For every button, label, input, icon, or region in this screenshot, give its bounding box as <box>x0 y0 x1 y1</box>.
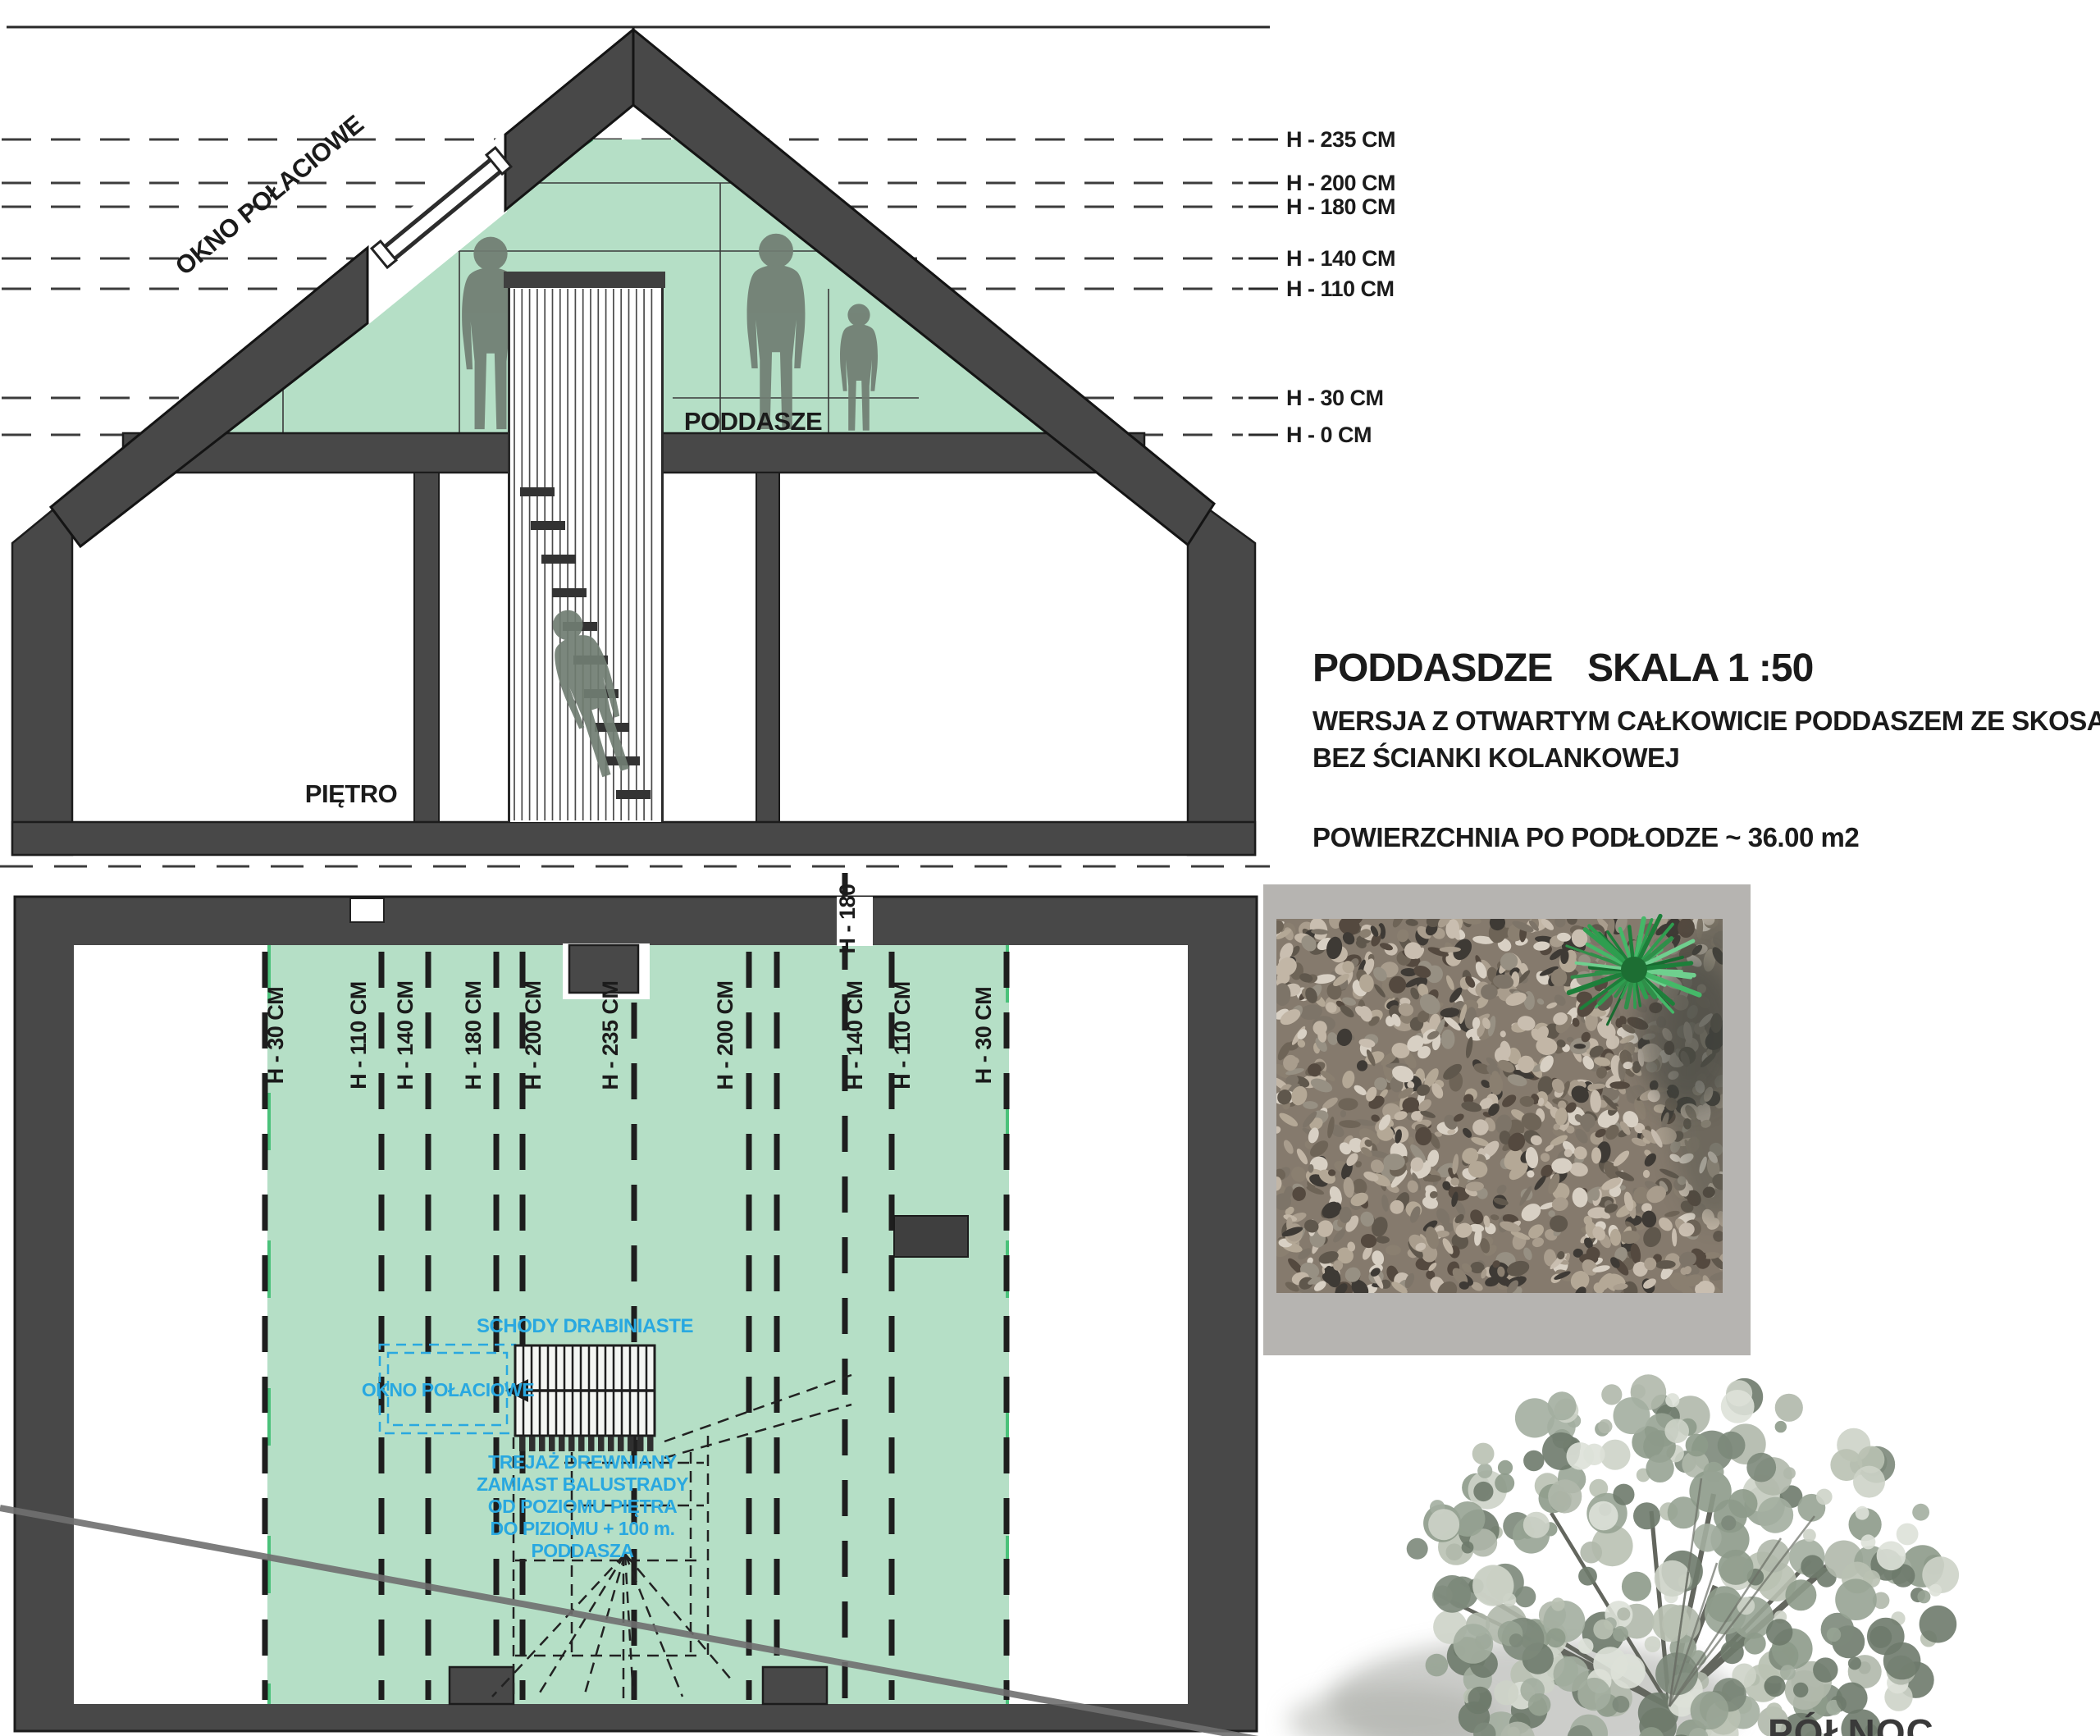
bottom-wall-pier <box>450 1667 514 1704</box>
baluster <box>588 1437 595 1451</box>
canopy-blob <box>1720 1641 1743 1664</box>
plan-height-label: H - 200 CM <box>713 980 737 1090</box>
canopy-blob <box>1766 1619 1792 1645</box>
canopy-blob <box>1613 1484 1634 1505</box>
canopy-blob <box>1664 1418 1689 1443</box>
title-block: PODDASDZE SKALA 1 :50 WERSJA Z OTWARTYM … <box>1312 646 2100 852</box>
north-label: PÓŁNOC <box>1768 1711 1934 1736</box>
trellis-note-line: TREJAŻ DREWNIANY <box>488 1451 677 1473</box>
canopy-blob <box>1869 1626 1892 1648</box>
plan-height-label: H - 30 CM <box>263 987 288 1085</box>
canopy-blob <box>1601 1384 1622 1405</box>
drawing-title: PODDASDZE <box>1312 646 1552 690</box>
attic-label: PODDASZE <box>684 407 822 436</box>
baluster <box>578 1437 585 1451</box>
canopy-blob <box>1877 1542 1906 1571</box>
canopy-blob <box>1652 1604 1690 1642</box>
canopy-blob <box>1693 1524 1722 1552</box>
canopy-blob <box>1853 1466 1885 1498</box>
roof-window-label: OKNO POŁACIOWE <box>170 110 369 281</box>
stairs-label: SCHODY DRABINIASTE <box>477 1315 693 1337</box>
canopy-blob <box>1744 1633 1766 1655</box>
stone <box>1386 1245 1401 1255</box>
height-line-label: H - 235 CM <box>1286 127 1395 152</box>
canopy-blob <box>1897 1524 1919 1546</box>
canopy-blob <box>1801 1555 1824 1578</box>
canopy-blob <box>1645 1636 1661 1652</box>
canopy-blob <box>1567 1442 1595 1470</box>
floor-area-note: POWIERZCHNIA PO PODŁODZE ~ 36.00 m2 <box>1312 822 1859 852</box>
canopy-blob <box>1704 1462 1724 1482</box>
canopy-blob <box>1523 1450 1544 1471</box>
canopy-blob <box>1920 1606 1957 1643</box>
canopy-blob <box>1757 1497 1793 1533</box>
stone <box>1274 983 1290 1006</box>
canopy-blob <box>1495 1473 1514 1493</box>
baluster <box>559 1437 565 1451</box>
drawing-subtitle-2: BEZ ŚCIANKI KOLANKOWEJ <box>1312 742 1679 773</box>
canopy-blob <box>1691 1692 1729 1730</box>
canopy-blob <box>1764 1675 1786 1697</box>
interior-wall <box>414 473 439 822</box>
canopy-blob <box>1407 1538 1428 1560</box>
canopy-blob <box>1477 1464 1492 1478</box>
canopy-blob <box>1613 1696 1630 1713</box>
baluster <box>637 1437 644 1451</box>
canopy-blob <box>1578 1567 1597 1586</box>
bottom-wall-pier <box>763 1667 827 1704</box>
canopy-blob <box>1835 1578 1877 1620</box>
tree-illustration <box>1288 1374 1959 1736</box>
plant-center <box>1621 957 1647 983</box>
canopy-blob <box>1473 1482 1493 1501</box>
canopy-blob <box>1803 1529 1816 1542</box>
canopy-blob <box>1446 1543 1463 1560</box>
height-line-label: H - 200 CM <box>1286 171 1395 195</box>
height-line-label: H - 180 CM <box>1286 194 1395 219</box>
canopy-blob <box>1472 1443 1495 1465</box>
ladder-rung <box>520 487 555 496</box>
canopy-blob <box>1503 1593 1516 1606</box>
plan-height-label: H - 30 CM <box>971 987 996 1085</box>
canopy-blob <box>1551 1597 1564 1610</box>
baluster <box>598 1437 605 1451</box>
height-line-label: H - 110 CM <box>1286 276 1395 301</box>
baluster <box>539 1437 546 1451</box>
canopy-blob <box>1613 1626 1628 1642</box>
canopy-blob <box>1509 1633 1523 1647</box>
canopy-blob <box>1917 1590 1930 1603</box>
canopy-blob <box>1856 1506 1869 1520</box>
drawing-canvas: H - 235 CMH - 200 CMH - 180 CMH - 140 CM… <box>0 0 2100 1736</box>
canopy-blob <box>1719 1550 1754 1585</box>
canopy-blob <box>1746 1453 1776 1482</box>
canopy-blob <box>1578 1638 1594 1654</box>
architectural-drawing-page: H - 235 CMH - 200 CMH - 180 CMH - 140 CM… <box>0 0 2100 1736</box>
canopy-blob <box>1546 1629 1566 1648</box>
canopy-blob <box>1580 1542 1602 1564</box>
baluster <box>647 1437 654 1451</box>
canopy-blob <box>1718 1432 1746 1460</box>
section-drawing: H - 235 CMH - 200 CMH - 180 CMH - 140 CM… <box>0 27 1395 866</box>
canopy-blob <box>1528 1693 1551 1716</box>
canopy-blob <box>1428 1509 1459 1540</box>
height-line-label: H - 0 CM <box>1286 423 1372 447</box>
plan-height-label: H - 180 CM <box>461 980 486 1090</box>
canopy-blob <box>1548 1479 1582 1513</box>
canopy-blob <box>1912 1504 1929 1521</box>
canopy-blob <box>1617 1607 1630 1620</box>
height-line-label: H - 140 CM <box>1286 246 1395 271</box>
canopy-blob <box>1785 1579 1816 1610</box>
pietro-floor-slab <box>12 822 1255 855</box>
canopy-blob <box>1646 1455 1673 1482</box>
canopy-blob <box>1498 1460 1513 1475</box>
tree-canopy <box>1407 1374 1959 1736</box>
canopy-blob <box>1813 1657 1837 1682</box>
ladder-rung <box>552 588 587 597</box>
plan-height-label: H - 110 CM <box>890 981 915 1090</box>
stone <box>1567 1037 1574 1043</box>
canopy-blob <box>1622 1572 1651 1601</box>
canopy-blob <box>1426 1654 1449 1677</box>
canopy-blob <box>1775 1394 1803 1422</box>
height-line-label: H - 30 CM <box>1286 386 1384 410</box>
plan-h180-label: H - 180 <box>835 884 860 953</box>
canopy-blob <box>1793 1683 1808 1697</box>
canopy-blob <box>1686 1434 1709 1457</box>
drawing-scale: SKALA 1 :50 <box>1587 646 1813 690</box>
baluster <box>568 1437 575 1451</box>
trellis-note-line: PODDASZA <box>531 1540 633 1561</box>
pietro-label: PIĘTRO <box>305 779 397 808</box>
stair-shaft <box>509 274 663 822</box>
canopy-blob <box>1462 1542 1474 1554</box>
canopy-blob <box>1929 1584 1942 1597</box>
baluster <box>519 1437 526 1451</box>
plan-height-label: H - 140 CM <box>842 980 867 1090</box>
canopy-blob <box>1633 1502 1660 1529</box>
canopy-blob <box>1883 1642 1921 1680</box>
ladder-rung <box>541 555 576 564</box>
canopy-blob <box>1775 1421 1787 1432</box>
plan-height-label: H - 140 CM <box>393 980 418 1090</box>
canopy-blob <box>1721 1390 1755 1423</box>
stair-railing-bar <box>504 272 665 288</box>
drawing-subtitle-1: WERSJA Z OTWARTYM CAŁKOWICIE PODDASZEM Z… <box>1312 706 2100 736</box>
trellis-note-line: OD POZIOMU PIĘTRA <box>488 1496 677 1517</box>
canopy-blob <box>1589 1501 1618 1531</box>
canopy-blob <box>1614 1397 1650 1434</box>
canopy-blob <box>1454 1624 1494 1664</box>
canopy-blob <box>1665 1393 1679 1407</box>
canopy-blob <box>1780 1665 1796 1680</box>
trellis-note-line: DO PIZIOMU + 100 m. <box>490 1518 674 1539</box>
canopy-blob <box>1611 1654 1646 1688</box>
canopy-blob <box>1721 1515 1736 1530</box>
canopy-blob <box>1593 1620 1613 1639</box>
canopy-blob <box>1827 1628 1841 1642</box>
canopy-blob <box>1433 1575 1471 1613</box>
ladder-rung <box>616 790 651 799</box>
plan-height-label: H - 110 CM <box>346 981 371 1090</box>
right-exterior-wall <box>1188 494 1255 855</box>
baluster <box>628 1437 634 1451</box>
canopy-blob <box>1515 1586 1536 1607</box>
plan-height-label: H - 235 CM <box>598 980 623 1090</box>
wall-window-notch <box>350 898 384 922</box>
canopy-blob <box>1577 1678 1610 1711</box>
canopy-blob <box>1515 1398 1554 1437</box>
plan-roof-window-label: OKNO POŁACIOWE <box>362 1379 534 1400</box>
floor-plan: H - 30 CMH - 110 CMH - 140 CMH - 180 CMH… <box>0 873 1267 1736</box>
left-exterior-wall <box>12 494 72 855</box>
baluster <box>529 1437 536 1451</box>
canopy-blob <box>1523 1512 1550 1538</box>
baluster <box>608 1437 614 1451</box>
plan-height-label: H - 200 CM <box>521 980 546 1090</box>
wall-segment-mark <box>894 1216 968 1257</box>
canopy-blob <box>1848 1656 1861 1670</box>
ladder-rung <box>531 521 565 530</box>
canopy-blob <box>1860 1534 1875 1549</box>
baluster <box>618 1437 624 1451</box>
baluster <box>549 1437 555 1451</box>
gravel-terrace <box>1263 884 1762 1355</box>
canopy-blob <box>1836 1683 1867 1714</box>
canopy-blob <box>1598 1419 1612 1433</box>
interior-wall <box>756 473 779 822</box>
canopy-blob <box>1494 1680 1518 1705</box>
canopy-blob <box>1816 1489 1833 1505</box>
trellis-note-line: ZAMIAST BALUSTRADY <box>477 1473 688 1495</box>
